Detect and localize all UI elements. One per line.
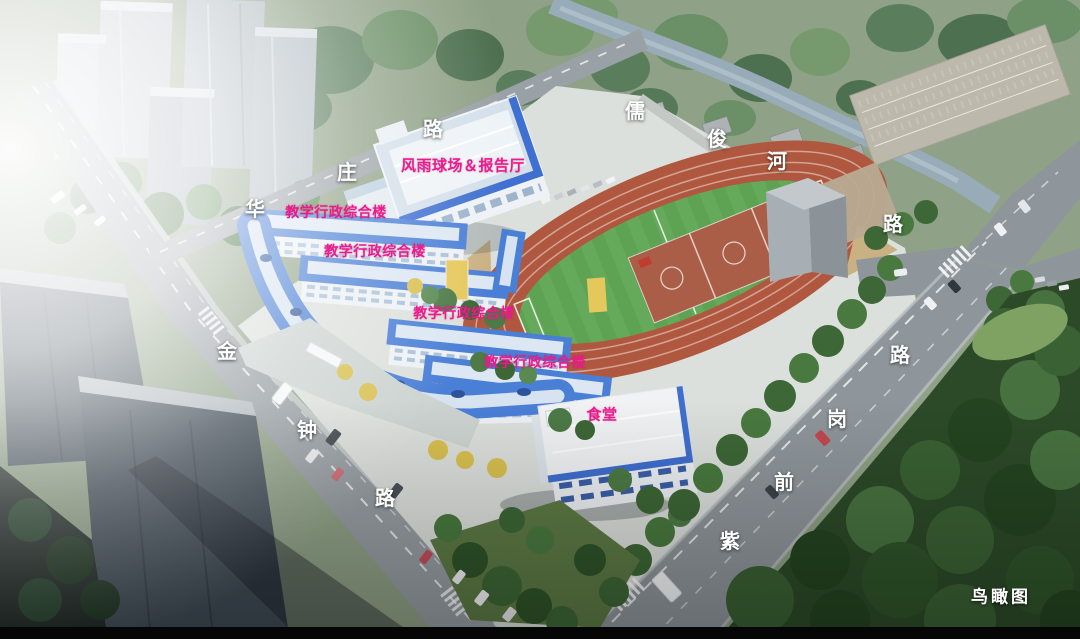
letterbox-bar — [0, 627, 1080, 639]
bottom-vignette — [0, 400, 1080, 639]
aerial-rendering: 风雨球场＆报告厅 教学行政综合楼 教学行政综合楼 教学行政综合楼 教学行政综合楼… — [0, 0, 1080, 639]
campus-scene — [0, 0, 1080, 639]
